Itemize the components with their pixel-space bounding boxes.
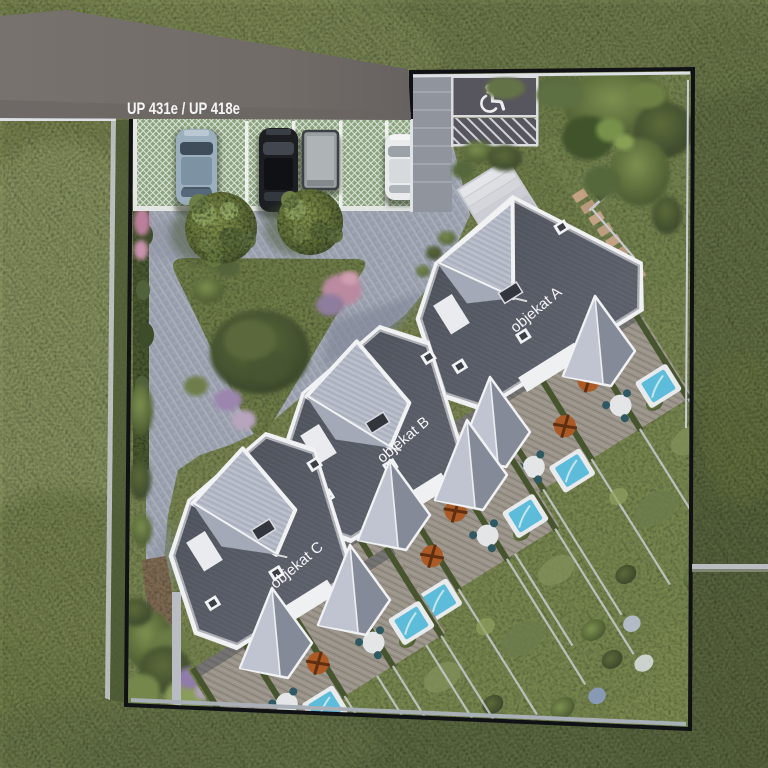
svg-text:UP 431e / UP 418e: UP 431e / UP 418e (127, 100, 240, 118)
